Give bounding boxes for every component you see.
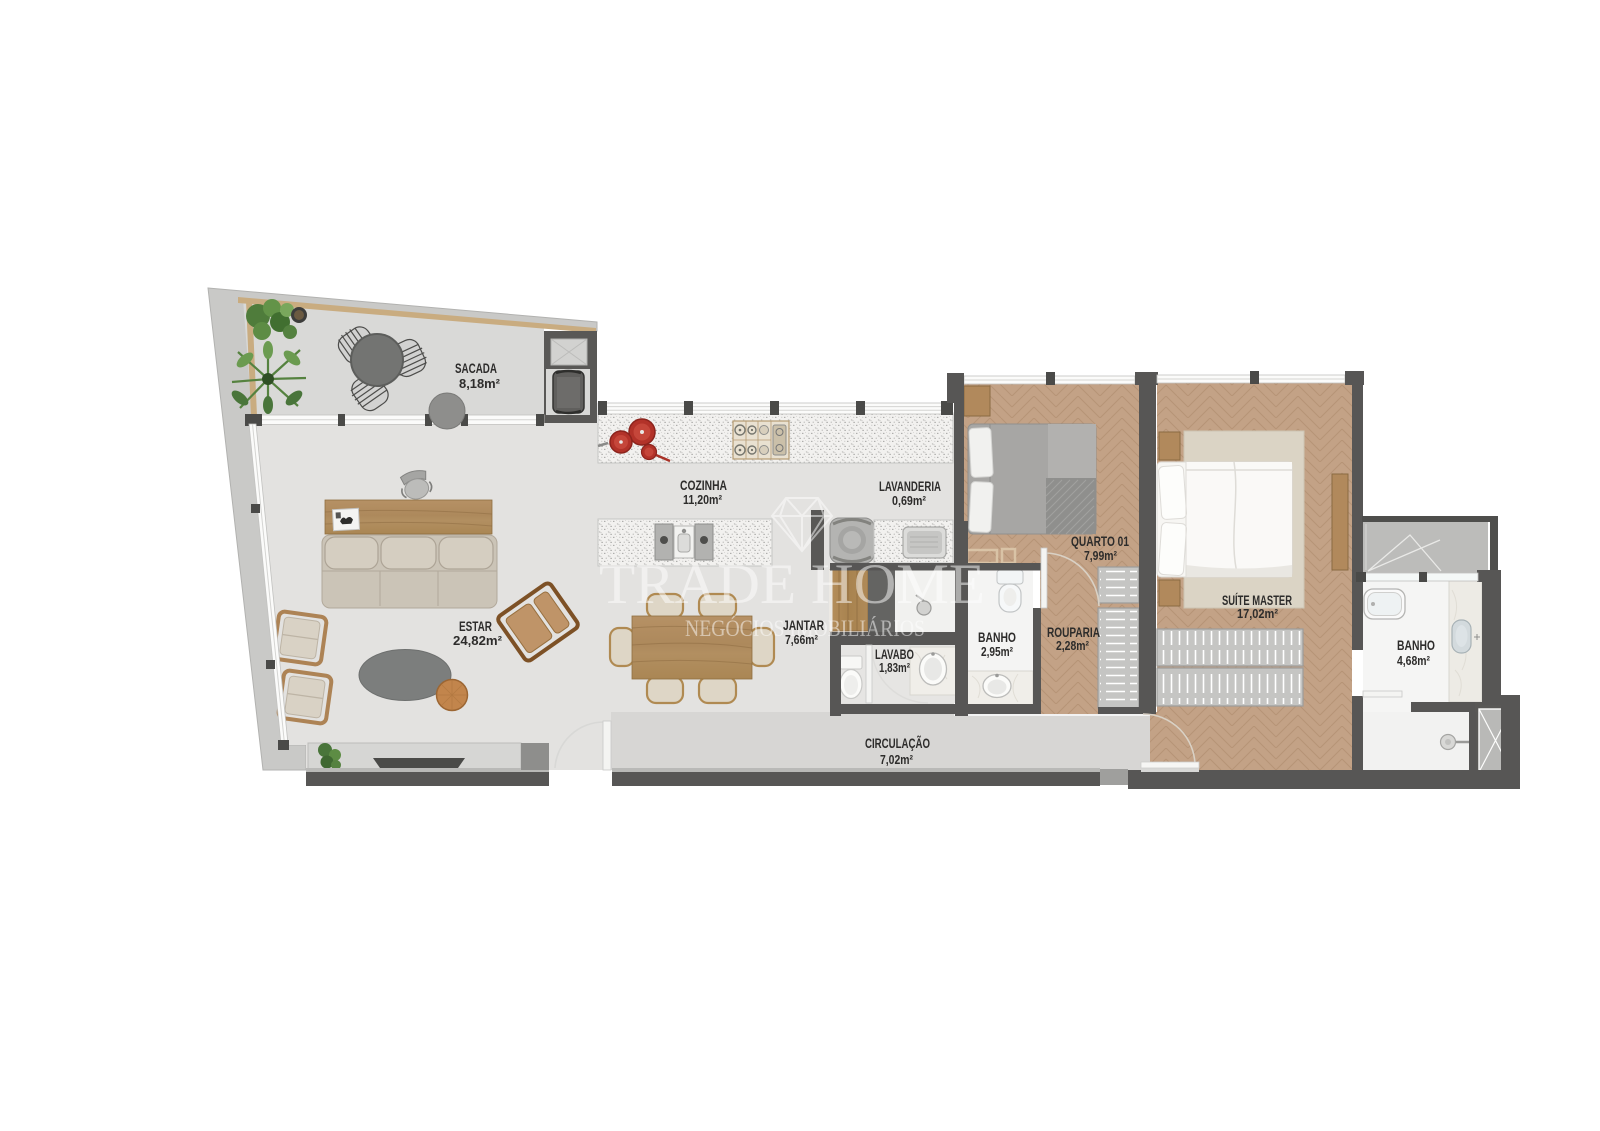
svg-text:0,69m²: 0,69m² <box>892 493 927 508</box>
svg-text:1,83m²: 1,83m² <box>879 660 910 675</box>
svg-text:8,18m²: 8,18m² <box>459 376 501 391</box>
svg-text:7,66m²: 7,66m² <box>785 632 819 647</box>
svg-text:7,99m²: 7,99m² <box>1084 548 1118 563</box>
svg-text:7,02m²: 7,02m² <box>880 752 914 767</box>
svg-text:TRADE HOME: TRADE HOME <box>599 553 985 616</box>
svg-text:BANHO: BANHO <box>1397 638 1435 653</box>
svg-text:SACADA: SACADA <box>455 361 497 376</box>
svg-text:LAVANDERIA: LAVANDERIA <box>879 479 941 494</box>
svg-text:ESTAR: ESTAR <box>459 619 492 634</box>
svg-text:CIRCULAÇÃO: CIRCULAÇÃO <box>865 736 930 751</box>
svg-text:11,20m²: 11,20m² <box>683 492 723 507</box>
svg-text:JANTAR: JANTAR <box>783 618 824 633</box>
svg-text:QUARTO 01: QUARTO 01 <box>1071 534 1129 549</box>
svg-text:17,02m²: 17,02m² <box>1237 606 1279 621</box>
svg-text:24,82m²: 24,82m² <box>453 633 503 648</box>
svg-text:BANHO: BANHO <box>978 630 1016 645</box>
svg-text:2,28m²: 2,28m² <box>1056 638 1090 653</box>
svg-text:COZINHA: COZINHA <box>680 478 727 493</box>
svg-text:2,95m²: 2,95m² <box>981 644 1014 659</box>
svg-text:4,68m²: 4,68m² <box>1397 653 1431 668</box>
